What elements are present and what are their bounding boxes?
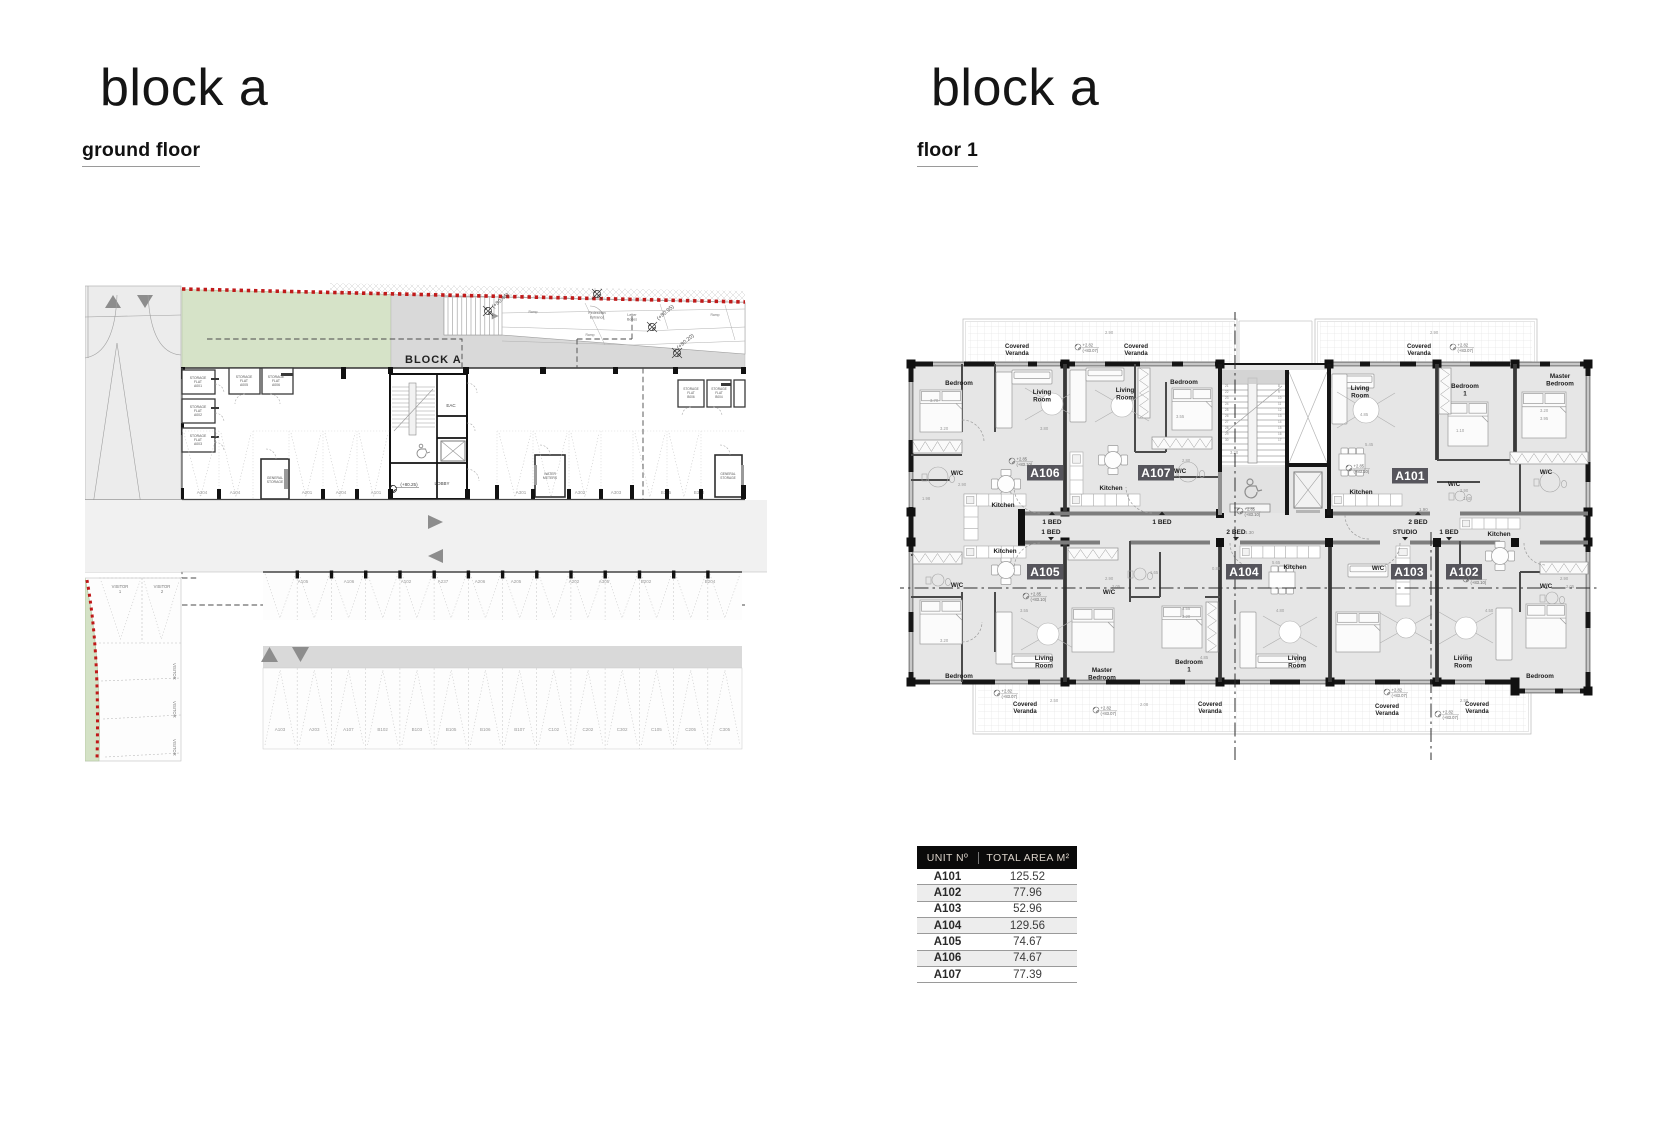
svg-text:B102: B102 xyxy=(377,727,388,732)
svg-text:CoveredVeranda: CoveredVeranda xyxy=(1407,344,1431,357)
svg-text:CoveredVeranda: CoveredVeranda xyxy=(1465,702,1489,715)
svg-text:24: 24 xyxy=(1225,402,1229,406)
svg-text:22: 22 xyxy=(1225,390,1229,394)
svg-text:2.90: 2.90 xyxy=(1430,330,1439,335)
svg-text:B204: B204 xyxy=(705,579,716,584)
svg-text:+2.82: +2.82 xyxy=(1083,343,1094,348)
svg-text:3.55: 3.55 xyxy=(1182,606,1191,611)
svg-text:+2.82: +2.82 xyxy=(1002,689,1013,694)
svg-text:VISITOR: VISITOR xyxy=(172,739,177,756)
svg-text:C205: C205 xyxy=(685,727,696,732)
svg-text:(+83.10): (+83.10) xyxy=(1471,580,1487,585)
svg-text:(+83.10): (+83.10) xyxy=(1354,469,1370,474)
svg-text:1.30: 1.30 xyxy=(1245,530,1254,535)
svg-text:A107: A107 xyxy=(343,727,354,732)
svg-text:(+83.10): (+83.10) xyxy=(1031,597,1047,602)
svg-text:+2.85: +2.85 xyxy=(1354,464,1365,469)
svg-text:C302: C302 xyxy=(617,727,628,732)
svg-text:15: 15 xyxy=(1278,426,1282,430)
svg-text:2.90: 2.90 xyxy=(958,482,967,487)
svg-text:A301: A301 xyxy=(516,490,527,495)
svg-text:B202: B202 xyxy=(641,579,652,584)
svg-text:VISITOR: VISITOR xyxy=(172,663,177,680)
svg-text:MasterBedroom: MasterBedroom xyxy=(1088,667,1116,682)
svg-text:(+83.10): (+83.10) xyxy=(1245,512,1261,517)
svg-text:Kitchen: Kitchen xyxy=(993,548,1016,555)
svg-text:A106: A106 xyxy=(344,579,355,584)
svg-text:3.20: 3.20 xyxy=(1540,408,1549,413)
svg-text:3.20: 3.20 xyxy=(1230,450,1239,455)
svg-text:B103: B103 xyxy=(412,727,423,732)
svg-text:3.95: 3.95 xyxy=(1540,416,1549,421)
svg-text:CoveredVeranda: CoveredVeranda xyxy=(1013,702,1037,715)
svg-text:A103: A103 xyxy=(1394,565,1424,579)
svg-text:A237: A237 xyxy=(438,579,449,584)
svg-text:Bedroom1: Bedroom1 xyxy=(1451,383,1479,398)
svg-text:+2.85: +2.85 xyxy=(1031,592,1042,597)
svg-text:+2.82: +2.82 xyxy=(1101,706,1112,711)
svg-text:STORAGE: STORAGE xyxy=(720,476,736,480)
svg-text:1 BED: 1 BED xyxy=(1041,529,1060,536)
svg-text:Kitchen: Kitchen xyxy=(1487,531,1510,538)
svg-text:Bedroom: Bedroom xyxy=(1526,673,1554,680)
svg-text:CoveredVeranda: CoveredVeranda xyxy=(1198,702,1222,715)
svg-text:2.50: 2.50 xyxy=(1050,698,1059,703)
svg-text:(+83.07): (+83.07) xyxy=(1443,715,1459,720)
svg-text:(+83.07): (+83.07) xyxy=(1458,348,1474,353)
svg-text:A101: A101 xyxy=(371,490,382,495)
svg-text:27: 27 xyxy=(1225,420,1229,424)
svg-text:2.90: 2.90 xyxy=(1105,576,1114,581)
svg-text:28: 28 xyxy=(1225,426,1229,430)
svg-text:A101: A101 xyxy=(1395,469,1425,483)
svg-text:1 BED: 1 BED xyxy=(1439,529,1458,536)
svg-text:8: 8 xyxy=(1278,384,1280,388)
svg-text:(+83.07): (+83.07) xyxy=(1083,348,1099,353)
svg-text:11: 11 xyxy=(1278,402,1282,406)
svg-text:STUDIO: STUDIO xyxy=(1393,529,1418,536)
svg-text:21: 21 xyxy=(1225,384,1229,388)
svg-text:CoveredVeranda: CoveredVeranda xyxy=(1375,704,1399,717)
svg-text:14: 14 xyxy=(1278,420,1282,424)
svg-text:A105: A105 xyxy=(1030,565,1060,579)
svg-text:2 BED: 2 BED xyxy=(1226,529,1245,536)
svg-text:3.55: 3.55 xyxy=(1020,608,1029,613)
svg-text:1.90: 1.90 xyxy=(1419,507,1428,512)
svg-text:A303: A303 xyxy=(611,490,622,495)
svg-text:LivingRoom: LivingRoom xyxy=(1116,387,1135,402)
svg-text:C105: C105 xyxy=(651,727,662,732)
svg-text:2.90: 2.90 xyxy=(1460,488,1469,493)
svg-text:4.85: 4.85 xyxy=(1360,412,1369,417)
svg-text:+2.85: +2.85 xyxy=(1471,575,1482,580)
svg-text:W/C: W/C xyxy=(1174,468,1187,475)
svg-text:LOBBY: LOBBY xyxy=(434,481,449,486)
svg-text:12: 12 xyxy=(1278,408,1282,412)
svg-text:+2.82: +2.82 xyxy=(1443,710,1454,715)
svg-text:C305: C305 xyxy=(719,727,730,732)
svg-text:Bedroom: Bedroom xyxy=(945,673,973,680)
svg-text:9: 9 xyxy=(1278,390,1280,394)
svg-text:30: 30 xyxy=(1225,438,1229,442)
svg-text:B006: B006 xyxy=(687,395,695,399)
svg-text:CoveredVeranda: CoveredVeranda xyxy=(1124,344,1148,357)
svg-text:A206: A206 xyxy=(475,579,486,584)
svg-text:A106: A106 xyxy=(1030,466,1060,480)
svg-text:A006: A006 xyxy=(272,383,280,387)
svg-text:3.20: 3.20 xyxy=(940,426,949,431)
svg-text:Kitchen: Kitchen xyxy=(1283,564,1306,571)
svg-text:CoveredVeranda: CoveredVeranda xyxy=(1005,344,1029,357)
svg-text:3.80: 3.80 xyxy=(1040,426,1049,431)
svg-text:10: 10 xyxy=(1278,396,1282,400)
svg-text:A105: A105 xyxy=(298,579,309,584)
svg-text:+2.85: +2.85 xyxy=(1245,507,1256,512)
svg-text:B105: B105 xyxy=(446,727,457,732)
svg-text:2.80: 2.80 xyxy=(1182,458,1191,463)
svg-text:1.10: 1.10 xyxy=(1456,428,1465,433)
svg-text:1.65: 1.65 xyxy=(1150,570,1159,575)
svg-text:5.65: 5.65 xyxy=(1272,560,1281,565)
svg-text:A102: A102 xyxy=(401,579,412,584)
svg-text:2.90: 2.90 xyxy=(1105,330,1114,335)
svg-text:A001: A001 xyxy=(194,384,202,388)
svg-text:W/C: W/C xyxy=(1103,589,1116,596)
svg-text:23: 23 xyxy=(1225,396,1229,400)
svg-text:A204: A204 xyxy=(336,490,347,495)
svg-text:2 BED: 2 BED xyxy=(1408,519,1427,526)
svg-text:3.20: 3.20 xyxy=(940,638,949,643)
svg-text:5.45: 5.45 xyxy=(1365,442,1374,447)
svg-text:4.80: 4.80 xyxy=(1276,608,1285,613)
svg-text:3.55: 3.55 xyxy=(1176,414,1185,419)
svg-text:A104: A104 xyxy=(1229,565,1259,579)
svg-text:(+83.07): (+83.07) xyxy=(1101,711,1117,716)
svg-text:25: 25 xyxy=(1225,408,1229,412)
svg-text:Bedroom: Bedroom xyxy=(945,380,973,387)
svg-text:W/C: W/C xyxy=(951,470,964,477)
svg-text:+2.82: +2.82 xyxy=(1392,688,1403,693)
svg-text:A202: A202 xyxy=(569,579,580,584)
svg-text:W/C: W/C xyxy=(1372,565,1385,572)
svg-text:Entrance: Entrance xyxy=(590,316,604,320)
svg-text:3.20: 3.20 xyxy=(1182,614,1191,619)
svg-text:C102: C102 xyxy=(548,727,559,732)
svg-text:1 BED: 1 BED xyxy=(1042,519,1061,526)
svg-text:A103: A103 xyxy=(275,727,286,732)
svg-text:Bedroom1: Bedroom1 xyxy=(1175,659,1203,674)
svg-text:A305: A305 xyxy=(599,579,610,584)
svg-text:Ramp: Ramp xyxy=(710,313,719,317)
svg-text:Bedroom: Bedroom xyxy=(1170,379,1198,386)
svg-text:Kitchen: Kitchen xyxy=(1099,485,1122,492)
svg-text:26: 26 xyxy=(1225,414,1229,418)
svg-text:W/C: W/C xyxy=(1540,469,1553,476)
svg-text:1.40: 1.40 xyxy=(1463,496,1472,501)
svg-text:(+83.10): (+83.10) xyxy=(1017,462,1033,467)
svg-text:Kitchen: Kitchen xyxy=(991,502,1014,509)
svg-text:Pedestrian: Pedestrian xyxy=(588,311,605,315)
svg-text:C202: C202 xyxy=(583,727,594,732)
svg-text:+2.85: +2.85 xyxy=(1017,457,1028,462)
svg-text:EAC: EAC xyxy=(446,403,456,408)
svg-text:Ramp: Ramp xyxy=(585,333,594,337)
svg-text:1.98: 1.98 xyxy=(922,496,931,501)
svg-text:A304: A304 xyxy=(197,490,208,495)
svg-text:LivingRoom: LivingRoom xyxy=(1288,655,1307,670)
svg-text:B107: B107 xyxy=(514,727,525,732)
svg-text:W/C: W/C xyxy=(1448,481,1461,488)
svg-text:STORAGE: STORAGE xyxy=(267,480,284,484)
svg-text:W/C: W/C xyxy=(951,582,964,589)
svg-text:2.08: 2.08 xyxy=(1140,702,1149,707)
svg-text:Kitchen: Kitchen xyxy=(1349,489,1372,496)
svg-text:4.50: 4.50 xyxy=(1485,608,1494,613)
svg-text:LivingRoom: LivingRoom xyxy=(1351,385,1370,400)
svg-text:MasterBedroom: MasterBedroom xyxy=(1546,373,1574,388)
svg-text:LivingRoom: LivingRoom xyxy=(1035,655,1054,670)
svg-text:Ramp: Ramp xyxy=(528,310,537,314)
svg-text:A203: A203 xyxy=(309,727,320,732)
svg-text:LivingRoom: LivingRoom xyxy=(1454,655,1473,670)
svg-text:VISITOR: VISITOR xyxy=(172,701,177,718)
svg-text:3.70: 3.70 xyxy=(930,398,939,403)
svg-text:W/C: W/C xyxy=(1540,583,1553,590)
svg-text:29: 29 xyxy=(1225,432,1229,436)
svg-text:A104: A104 xyxy=(230,490,241,495)
svg-text:(+83.07): (+83.07) xyxy=(1392,693,1408,698)
svg-text:A107: A107 xyxy=(1141,466,1171,480)
svg-text:B004: B004 xyxy=(715,395,723,399)
svg-text:(+80.25): (+80.25) xyxy=(400,482,418,487)
svg-text:A205: A205 xyxy=(511,579,522,584)
svg-text:LivingRoom: LivingRoom xyxy=(1033,389,1052,404)
svg-text:1 BED: 1 BED xyxy=(1152,519,1171,526)
svg-text:A002: A002 xyxy=(194,413,202,417)
svg-text:13: 13 xyxy=(1278,414,1282,418)
svg-text:A003: A003 xyxy=(194,442,202,446)
svg-text:A302: A302 xyxy=(575,490,586,495)
svg-text:(+83.07): (+83.07) xyxy=(1002,694,1018,699)
svg-text:+2.82: +2.82 xyxy=(1458,343,1469,348)
svg-text:A005: A005 xyxy=(240,383,248,387)
svg-text:B106: B106 xyxy=(480,727,491,732)
svg-text:BLOCK A: BLOCK A xyxy=(405,354,462,366)
svg-text:2.90: 2.90 xyxy=(1560,576,1569,581)
svg-text:0.88: 0.88 xyxy=(1212,566,1221,571)
svg-text:16: 16 xyxy=(1278,432,1282,436)
svg-text:A201: A201 xyxy=(302,490,313,495)
svg-text:17: 17 xyxy=(1278,438,1282,442)
